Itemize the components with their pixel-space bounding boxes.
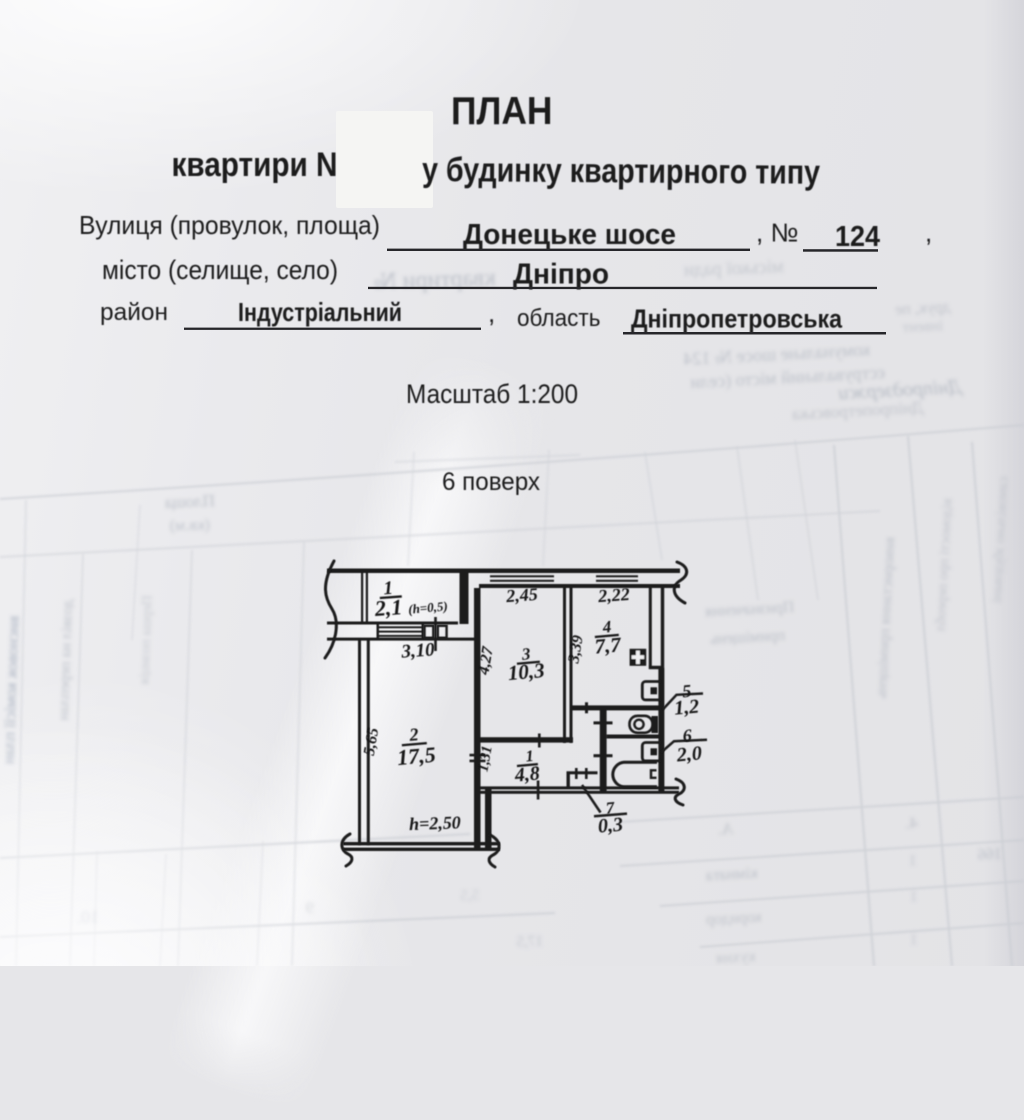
svg-text:124: 124 — [835, 221, 880, 253]
svg-text:h=2,50: h=2,50 — [409, 812, 461, 834]
svg-text:4,8: 4,8 — [513, 762, 541, 786]
svg-text:Масштаб 1:200: Масштаб 1:200 — [406, 379, 578, 409]
svg-text:Дніпропетровська: Дніпропетровська — [631, 304, 842, 334]
svg-text:область: область — [517, 305, 601, 332]
svg-text:7,7: 7,7 — [594, 632, 624, 658]
svg-text:місто (селище, село): місто (селище, село) — [102, 255, 338, 285]
svg-text:Донецьке шосе: Донецьке шосе — [463, 219, 676, 251]
svg-text:,: , — [488, 298, 495, 328]
svg-text:Дніпро: Дніпро — [513, 259, 609, 291]
svg-text:Вулиця (провулок, площа): Вулиця (провулок, площа) — [79, 210, 380, 240]
svg-text:2,45: 2,45 — [505, 584, 539, 606]
svg-text:1,31: 1,31 — [475, 744, 495, 773]
svg-text:2,22: 2,22 — [597, 584, 631, 606]
svg-text:ПЛАН: ПЛАН — [451, 90, 553, 133]
svg-text:, №: , № — [756, 218, 798, 248]
svg-text:0,3: 0,3 — [597, 814, 624, 838]
svg-text:2: 2 — [408, 724, 420, 745]
svg-text:3,10: 3,10 — [400, 639, 436, 662]
svg-text:5,65: 5,65 — [361, 726, 383, 757]
svg-text:2,1: 2,1 — [373, 594, 403, 621]
svg-text:у будинку квартирного типу: у будинку квартирного типу — [422, 151, 820, 192]
svg-text:,: , — [925, 218, 932, 248]
svg-text:Індустріальний: Індустріальний — [238, 297, 402, 327]
svg-text:2,0: 2,0 — [675, 742, 703, 766]
svg-text:квартири N: квартири N — [172, 146, 338, 184]
svg-text:17,5: 17,5 — [396, 742, 437, 770]
svg-text:1,2: 1,2 — [673, 696, 700, 720]
svg-text:район: район — [100, 299, 168, 326]
svg-text:(h=0,5): (h=0,5) — [408, 598, 449, 616]
svg-text:6 поверх: 6 поверх — [442, 468, 540, 496]
svg-text:10,3: 10,3 — [507, 658, 546, 685]
svg-text:3,39: 3,39 — [565, 634, 587, 666]
